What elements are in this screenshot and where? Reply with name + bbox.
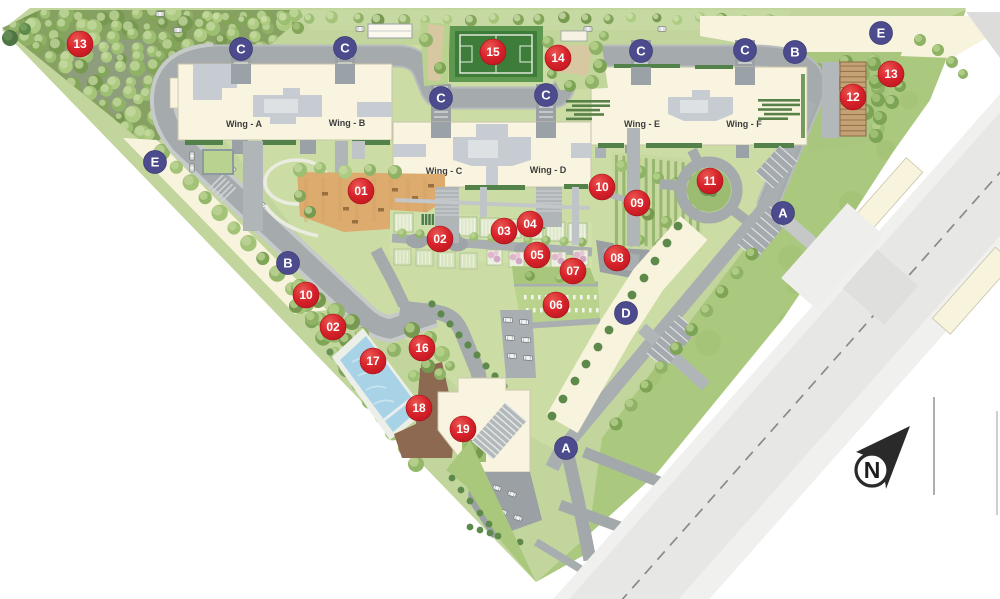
svg-text:10: 10 <box>595 180 609 194</box>
svg-text:C: C <box>436 91 446 106</box>
svg-text:C: C <box>340 41 350 56</box>
svg-text:C: C <box>740 43 750 58</box>
svg-text:09: 09 <box>630 196 644 210</box>
svg-text:E: E <box>151 155 160 170</box>
svg-text:07: 07 <box>566 264 580 278</box>
svg-text:Wing - F: Wing - F <box>726 119 762 129</box>
svg-text:10: 10 <box>299 288 313 302</box>
svg-text:12: 12 <box>846 90 860 104</box>
svg-text:N: N <box>864 457 881 483</box>
svg-text:19: 19 <box>456 422 470 436</box>
svg-text:B: B <box>790 45 799 60</box>
svg-text:02: 02 <box>326 320 340 334</box>
svg-text:17: 17 <box>366 354 380 368</box>
svg-text:B: B <box>283 256 292 271</box>
svg-text:18: 18 <box>412 401 426 415</box>
svg-text:06: 06 <box>549 298 563 312</box>
svg-text:01: 01 <box>354 184 368 198</box>
svg-text:D: D <box>621 306 630 321</box>
svg-text:Wing - B: Wing - B <box>329 118 366 128</box>
svg-text:13: 13 <box>884 67 898 81</box>
svg-text:13: 13 <box>73 37 87 51</box>
svg-text:C: C <box>636 44 646 59</box>
svg-text:05: 05 <box>530 248 544 262</box>
svg-text:14: 14 <box>551 51 565 65</box>
svg-text:Wing - E: Wing - E <box>624 119 660 129</box>
svg-text:02: 02 <box>433 232 447 246</box>
svg-text:04: 04 <box>523 217 537 231</box>
svg-text:Wing - A: Wing - A <box>226 119 263 129</box>
svg-text:E: E <box>877 26 886 41</box>
svg-text:C: C <box>541 88 551 103</box>
svg-text:A: A <box>561 441 571 456</box>
svg-text:Wing - D: Wing - D <box>530 165 567 175</box>
svg-text:11: 11 <box>704 174 717 188</box>
svg-text:A: A <box>778 206 788 221</box>
svg-text:16: 16 <box>415 341 429 355</box>
svg-text:03: 03 <box>497 224 511 238</box>
svg-text:C: C <box>236 42 246 57</box>
svg-text:15: 15 <box>486 45 500 59</box>
svg-text:08: 08 <box>610 251 624 265</box>
